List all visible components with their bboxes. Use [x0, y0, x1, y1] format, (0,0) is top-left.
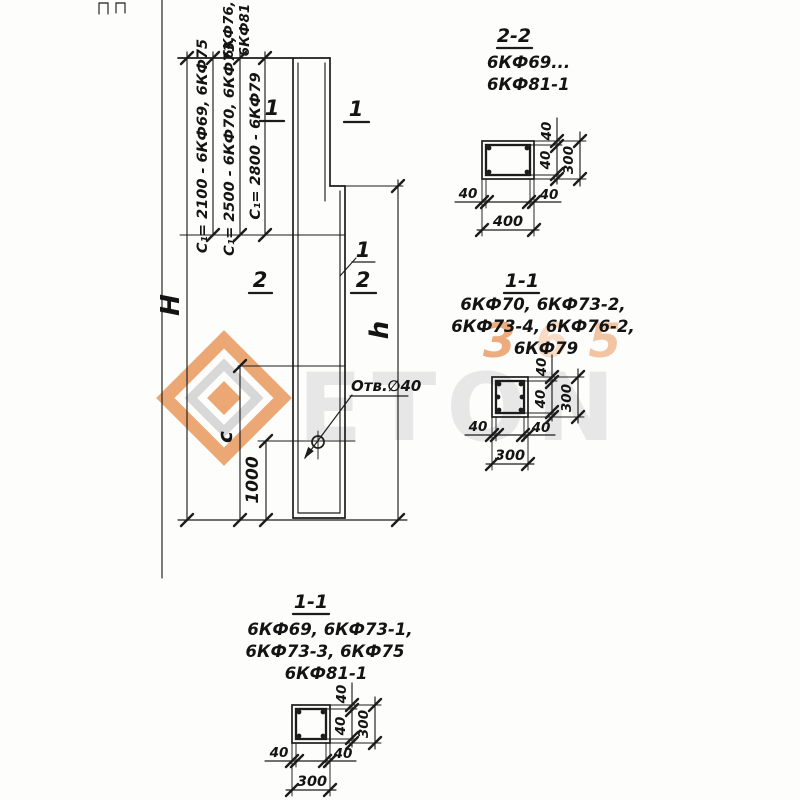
cut-mark-2-left: 2 — [253, 268, 268, 292]
s11m-types-3: 6КФ79 — [514, 339, 578, 358]
section-2-2-title: 2-2 — [497, 25, 531, 47]
s11m-dim-40-bottom: 40 — [533, 390, 549, 410]
section-cut-marks: 1 1 2 1 2 — [249, 96, 376, 293]
section-2-2-types-2: 6КФ81-1 — [487, 75, 570, 94]
dim-label-H: H — [156, 294, 186, 316]
s22-dim-400: 400 — [492, 214, 523, 230]
s11b-dim-40-left: 40 — [269, 745, 289, 761]
section-2-2: 2-2 6КФ69... 6КФ81-1 40 40 300 40 40 400 — [455, 25, 586, 236]
s11b-dim-300-h: 300 — [297, 774, 327, 790]
hole-callout: Отв.∅40 — [304, 377, 421, 459]
dim-label-c1-2500-cont2: 6КФ81 — [237, 4, 253, 57]
dim-label-c1-2500-cont1: 6КФ76, — [221, 1, 237, 59]
dim-label-h: h — [365, 321, 395, 340]
section-2-2-types-1: 6КФ69... — [487, 53, 570, 72]
hole-label: Отв.∅40 — [351, 377, 421, 395]
s22-dim-40-bottom: 40 — [538, 151, 554, 171]
s22-dim-300: 300 — [561, 146, 577, 174]
s11m-dim-40-left: 40 — [468, 419, 488, 435]
dim-label-c1-2500: C₁= 2500 - 6КФ70, 6КФ73, — [222, 36, 238, 256]
s11b-title: 1-1 — [294, 591, 328, 613]
s11m-dim-40-top: 40 — [534, 358, 550, 378]
s11m-types-1: 6КФ70, 6КФ73-2, — [460, 295, 625, 314]
cut-mark-1-top-right: 1 — [349, 97, 364, 121]
s11m-dim-300-h: 300 — [495, 448, 525, 464]
dim-label-1000: 1000 — [243, 456, 263, 503]
s11m-title: 1-1 — [505, 270, 539, 292]
s11b-types-1: 6КФ69, 6КФ73-1, — [247, 620, 412, 639]
section-1-1-mid: 1-1 6КФ70, 6КФ73-2, 6КФ73-4, 6КФ76-2, 6К… — [451, 270, 635, 470]
s22-dim-40-left: 40 — [458, 186, 478, 202]
s11b-dim-300-v: 300 — [356, 710, 372, 738]
s22-dim-40-right: 40 — [539, 187, 559, 203]
cut-mark-2-right: 2 — [356, 268, 371, 292]
s11m-types-2: 6КФ73-4, 6КФ76-2, — [451, 317, 635, 336]
cut-mark-1-right: 1 — [356, 238, 371, 262]
drawing-canvas: Отв.∅40 H h c 1000 C₁= 2100 - 6КФ69, 6КФ… — [0, 0, 800, 800]
cut-mark-1-top-left: 1 — [265, 96, 280, 120]
dim-label-c: c — [213, 431, 237, 443]
dimension-ticks — [181, 52, 586, 796]
s11m-dim-300-v: 300 — [559, 384, 575, 412]
dim-label-c1-2100: C₁= 2100 - 6КФ69, 6КФ75 — [195, 39, 211, 253]
s11b-types-3: 6КФ81-1 — [285, 664, 368, 683]
s11b-dim-40-top: 40 — [334, 685, 350, 705]
dim-label-c1-2800: C₁= 2800 - 6КФ79 — [248, 72, 264, 219]
sheet-frame — [99, 0, 162, 578]
s22-dim-40-top: 40 — [539, 122, 555, 142]
s11b-dim-40-bottom: 40 — [333, 717, 349, 737]
s11b-types-2: 6КФ73-3, 6КФ75 — [246, 642, 405, 661]
section-2-2-rebar-cage — [486, 145, 530, 175]
blueprint-page: ETON 365 — [0, 0, 800, 800]
section-1-1-bottom: 1-1 6КФ69, 6КФ73-1, 6КФ73-3, 6КФ75 6КФ81… — [246, 591, 413, 796]
